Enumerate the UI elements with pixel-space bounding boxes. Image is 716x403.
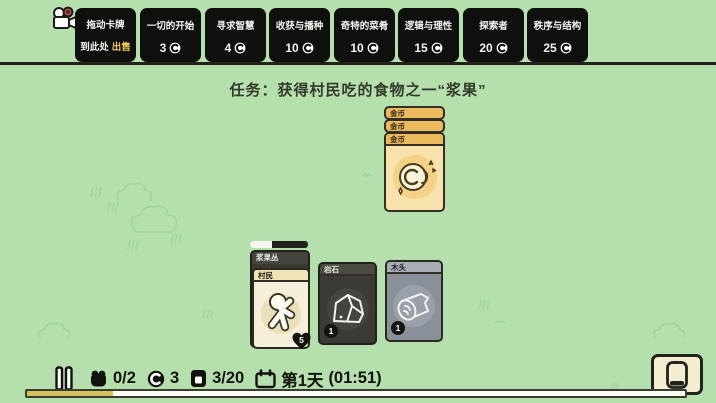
coin-icon: [496, 42, 508, 54]
day-timer: (01:51): [328, 369, 381, 388]
coin-icon: [169, 42, 181, 54]
villager-art-icon: [257, 289, 305, 339]
coin-card-stacked[interactable]: 金币: [384, 119, 445, 133]
card-title: 木头: [387, 262, 441, 274]
calendar-icon: [255, 369, 276, 389]
coin-icon: [147, 370, 165, 388]
harvest-progress-fill: [250, 241, 272, 248]
pack-price: 10: [285, 41, 298, 55]
health-value: 5: [292, 335, 311, 345]
sell-line1: 拖动卡牌: [75, 17, 136, 31]
card-title: 村民: [254, 270, 308, 282]
pack-name: 一切的开始: [140, 18, 201, 32]
sell-highlight: 出售: [112, 39, 131, 53]
stack-count-badge: 1: [324, 324, 338, 338]
coin-icon: [431, 42, 443, 54]
villager-count: 0/2: [113, 369, 136, 388]
card-title: 岩石: [320, 264, 375, 276]
sell-drop-zone[interactable]: 拖动卡牌 到此处出售: [75, 8, 136, 62]
pack-price: 20: [479, 41, 492, 55]
booster-pack-order-and-structure[interactable]: 秩序与结构 25: [527, 8, 588, 62]
bottom-hud: 0/2 3 3/20 第1天 (01:51): [55, 366, 382, 391]
pack-name: 探索者: [463, 18, 524, 32]
booster-pack-reap-and-sow[interactable]: 收获与播种 10: [269, 8, 330, 62]
health-badge: 5: [292, 332, 311, 350]
pack-price: 15: [414, 41, 427, 55]
harvest-progress-bar: [250, 241, 308, 248]
card-count-icon: [190, 369, 207, 388]
booster-pack-seeking-wisdom[interactable]: 寻求智慧 4: [205, 8, 266, 62]
stack-count-badge: 1: [391, 321, 405, 335]
card-title: 浆果丛: [252, 252, 308, 264]
pack-price: 10: [350, 41, 363, 55]
sell-line2: 到此处出售: [75, 39, 136, 53]
pack-price: 25: [543, 41, 556, 55]
coin-icon: [234, 42, 246, 54]
villager-card[interactable]: 村民 5: [252, 268, 310, 349]
pack-name: 奇特的菜肴: [334, 18, 395, 32]
booster-pack-logic-and-reason[interactable]: 逻辑与理性 15: [398, 8, 459, 62]
day-label: 第1天: [281, 367, 323, 391]
coin-count: 3: [170, 369, 179, 388]
coin-icon: [367, 42, 379, 54]
pack-name: 收获与播种: [269, 18, 330, 32]
game-screen: 拖动卡牌 到此处出售 一切的开始 3 寻求智慧 4 收获与播种 10 奇特的菜肴…: [0, 0, 716, 403]
quest-banner: 任务：获得村民吃的食物之一“浆果”: [0, 79, 716, 100]
booster-pack-humble-beginnings[interactable]: 一切的开始 3: [140, 8, 201, 62]
top-bar-divider: [0, 62, 716, 65]
coin-card[interactable]: 金币: [384, 132, 445, 212]
day-progress-bar: [25, 389, 687, 398]
booster-pack-explorers[interactable]: 探索者 20: [463, 8, 524, 62]
wood-card[interactable]: 木头 1: [385, 260, 443, 342]
pack-name: 寻求智慧: [205, 18, 266, 32]
pack-price: 4: [225, 41, 232, 55]
coin-icon: [302, 42, 314, 54]
coin-card-stacked[interactable]: 金币: [384, 106, 445, 120]
villager-count-icon: [89, 369, 108, 388]
booster-pack-curious-cuisine[interactable]: 奇特的菜肴 10: [334, 8, 395, 62]
pack-name: 逻辑与理性: [398, 18, 459, 32]
pack-name: 秩序与结构: [527, 18, 588, 32]
book-icon: [664, 360, 690, 390]
card-count: 3/20: [212, 369, 244, 388]
pack-price: 3: [160, 41, 167, 55]
card-title: 金币: [386, 134, 443, 146]
coin-icon: [560, 42, 572, 54]
rock-card[interactable]: 岩石 1: [318, 262, 377, 345]
day-progress-fill: [27, 391, 113, 396]
coin-art-icon: [389, 153, 441, 201]
pause-button[interactable]: [55, 366, 73, 391]
